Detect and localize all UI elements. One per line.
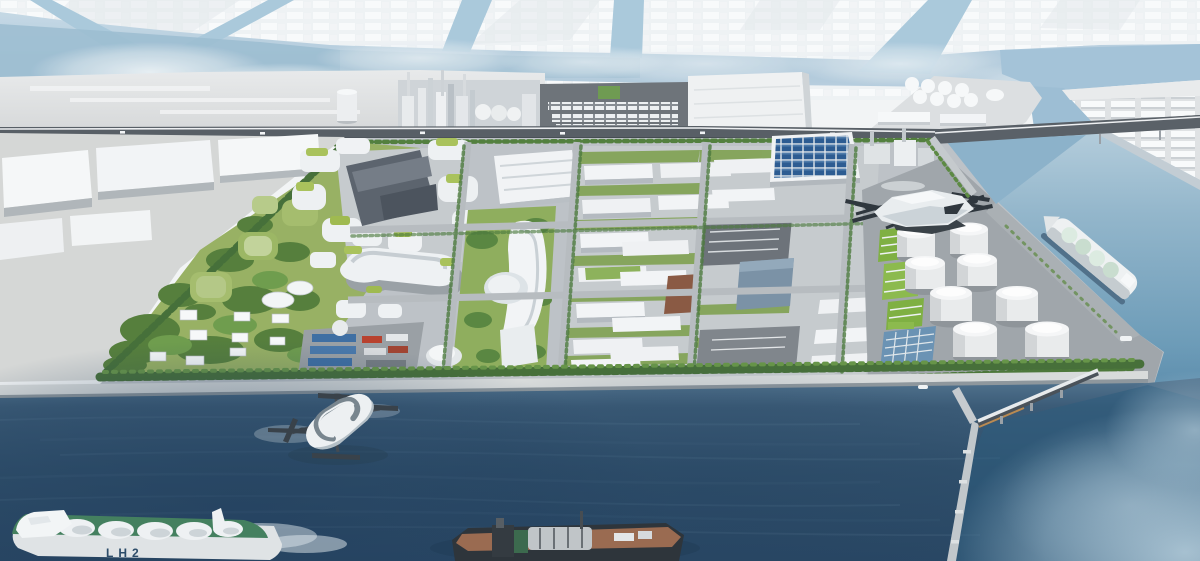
svg-text:LH2: LH2 bbox=[106, 546, 144, 560]
